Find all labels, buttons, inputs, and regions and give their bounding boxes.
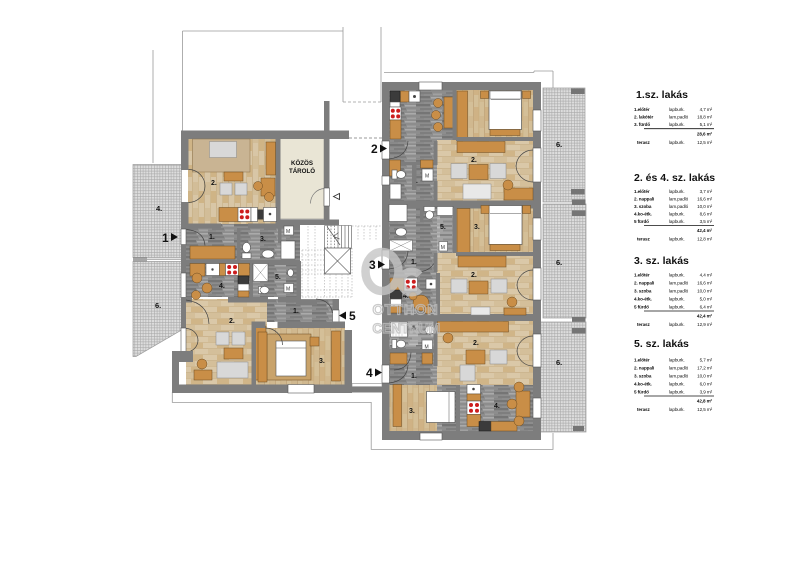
svg-text:lam.padló: lam.padló [669, 366, 689, 371]
svg-text:lapburk.: lapburk. [669, 382, 685, 387]
svg-text:4.: 4. [494, 403, 500, 410]
svg-text:16,6 m²: 16,6 m² [697, 197, 712, 202]
svg-text:10,0 m²: 10,0 m² [697, 374, 712, 379]
svg-text:16,6 m²: 16,6 m² [697, 281, 712, 286]
svg-text:2. nappali: 2. nappali [634, 281, 654, 286]
svg-text:2. lakótér: 2. lakótér [634, 115, 653, 120]
svg-text:lapburk.: lapburk. [669, 237, 685, 242]
svg-text:CENTRUM: CENTRUM [373, 321, 441, 336]
svg-text:5 fürdő: 5 fürdő [634, 390, 649, 395]
svg-text:18,8 m²: 18,8 m² [697, 115, 712, 120]
svg-text:3. szoba: 3. szoba [634, 289, 652, 294]
svg-text:2.: 2. [229, 318, 235, 325]
svg-text:lapburk.: lapburk. [669, 107, 685, 112]
svg-text:4.: 4. [219, 283, 225, 290]
svg-text:lam.padló: lam.padló [669, 115, 689, 120]
svg-text:5.: 5. [275, 274, 281, 281]
svg-text:3: 3 [369, 258, 376, 272]
svg-text:4,4 m²: 4,4 m² [700, 273, 713, 278]
svg-text:17,2 m²: 17,2 m² [697, 366, 712, 371]
svg-text:lapburk.: lapburk. [669, 358, 685, 363]
svg-text:lam.padló: lam.padló [669, 289, 689, 294]
svg-text:lapburk.: lapburk. [669, 212, 685, 217]
svg-text:1.előtér: 1.előtér [634, 107, 650, 112]
svg-text:3,5 m²: 3,5 m² [700, 219, 713, 224]
svg-text:1.: 1. [293, 308, 299, 315]
svg-text:terasz: terasz [637, 140, 650, 145]
svg-text:lapburk.: lapburk. [669, 273, 685, 278]
svg-text:1.sz. lakás: 1.sz. lakás [636, 89, 688, 101]
svg-text:6.: 6. [556, 258, 562, 267]
svg-text:42,4 m²: 42,4 m² [697, 314, 713, 319]
svg-text:2. nappali: 2. nappali [634, 366, 654, 371]
svg-text:5 fürdő: 5 fürdő [634, 219, 649, 224]
svg-text:1.előtér: 1.előtér [634, 189, 650, 194]
svg-text:3.: 3. [260, 236, 266, 243]
svg-text:1.előtér: 1.előtér [634, 358, 650, 363]
svg-text:OTTHON: OTTHON [373, 303, 439, 319]
svg-text:5,7 m²: 5,7 m² [700, 358, 713, 363]
svg-text:M: M [286, 287, 290, 293]
svg-text:12,9 m²: 12,9 m² [697, 322, 712, 327]
svg-text:8,6 m²: 8,6 m² [700, 212, 713, 217]
svg-text:1.: 1. [411, 259, 417, 266]
svg-text:6,0 m²: 6,0 m² [700, 382, 713, 387]
svg-text:lapburk.: lapburk. [669, 140, 685, 145]
svg-text:M: M [286, 229, 290, 235]
svg-text:terasz: terasz [637, 237, 650, 242]
svg-text:1.előtér: 1.előtér [634, 273, 650, 278]
svg-text:5,0 m²: 5,0 m² [700, 297, 713, 302]
svg-text:28,6 m²: 28,6 m² [697, 132, 713, 137]
svg-text:lam.padló: lam.padló [669, 204, 689, 209]
svg-text:5.: 5. [440, 224, 446, 231]
svg-text:3,7 m²: 3,7 m² [700, 189, 713, 194]
svg-text:5: 5 [349, 309, 356, 323]
svg-text:TÁROLÓ: TÁROLÓ [289, 167, 315, 175]
svg-text:lapburk.: lapburk. [669, 189, 685, 194]
svg-text:1.: 1. [411, 373, 417, 380]
svg-text:4.: 4. [156, 204, 162, 213]
svg-text:3. fürdő: 3. fürdő [634, 122, 650, 127]
svg-text:42,8 m²: 42,8 m² [697, 399, 713, 404]
svg-text:lam.padló: lam.padló [669, 374, 689, 379]
svg-text:terasz: terasz [637, 322, 650, 327]
svg-text:1: 1 [162, 231, 169, 245]
svg-text:42,4 m²: 42,4 m² [697, 228, 713, 233]
svg-text:4.ko-étk.: 4.ko-étk. [634, 297, 652, 302]
svg-text:12,5 m²: 12,5 m² [697, 140, 712, 145]
svg-text:5,1 m²: 5,1 m² [700, 122, 713, 127]
svg-text:2.: 2. [471, 272, 477, 279]
svg-text:6.: 6. [556, 358, 562, 367]
svg-text:3.: 3. [319, 358, 325, 365]
svg-text:lapburk.: lapburk. [669, 407, 685, 412]
svg-text:2: 2 [371, 142, 378, 156]
svg-text:lapburk.: lapburk. [669, 390, 685, 395]
svg-text:3. sz. lakás: 3. sz. lakás [634, 255, 689, 267]
svg-text:4.ko-étk.: 4.ko-étk. [634, 382, 652, 387]
svg-text:10,0 m²: 10,0 m² [697, 289, 712, 294]
svg-text:2.: 2. [211, 180, 217, 187]
svg-text:10,0 m²: 10,0 m² [697, 204, 712, 209]
svg-text:lapburk.: lapburk. [669, 322, 685, 327]
svg-text:3,9 m²: 3,9 m² [700, 390, 713, 395]
svg-text:2. nappali: 2. nappali [634, 197, 654, 202]
svg-text:lapburk.: lapburk. [669, 219, 685, 224]
svg-text:3. szoba: 3. szoba [634, 374, 652, 379]
svg-text:4: 4 [366, 366, 373, 380]
svg-text:5 fürdő: 5 fürdő [634, 305, 649, 310]
svg-text:lapburk.: lapburk. [669, 297, 685, 302]
svg-text:M: M [425, 174, 429, 180]
svg-text:12,8 m²: 12,8 m² [697, 237, 712, 242]
svg-text:M: M [441, 245, 445, 251]
svg-text:6.: 6. [556, 140, 562, 149]
svg-text:2. és 4. sz. lakás: 2. és 4. sz. lakás [634, 172, 715, 184]
svg-text:2.: 2. [471, 157, 477, 164]
svg-text:3.: 3. [409, 408, 415, 415]
svg-text:4.ko-étk.: 4.ko-étk. [634, 212, 652, 217]
svg-text:12,5 m²: 12,5 m² [697, 407, 712, 412]
svg-text:4,7 m²: 4,7 m² [700, 107, 713, 112]
svg-text:3.: 3. [474, 224, 480, 231]
svg-text:1.: 1. [209, 234, 215, 241]
svg-text:5. sz. lakás: 5. sz. lakás [634, 338, 689, 350]
svg-text:lam.padló: lam.padló [669, 281, 689, 286]
svg-text:3. szoba: 3. szoba [634, 204, 652, 209]
svg-text:KÖZÖS: KÖZÖS [291, 160, 313, 167]
svg-text:terasz: terasz [637, 407, 650, 412]
svg-text:lam.padló: lam.padló [669, 197, 689, 202]
svg-text:6,4 m²: 6,4 m² [700, 305, 713, 310]
svg-text:6.: 6. [155, 301, 161, 310]
svg-text:lapburk.: lapburk. [669, 122, 685, 127]
svg-text:2.: 2. [473, 340, 479, 347]
svg-text:lapburk.: lapburk. [669, 305, 685, 310]
